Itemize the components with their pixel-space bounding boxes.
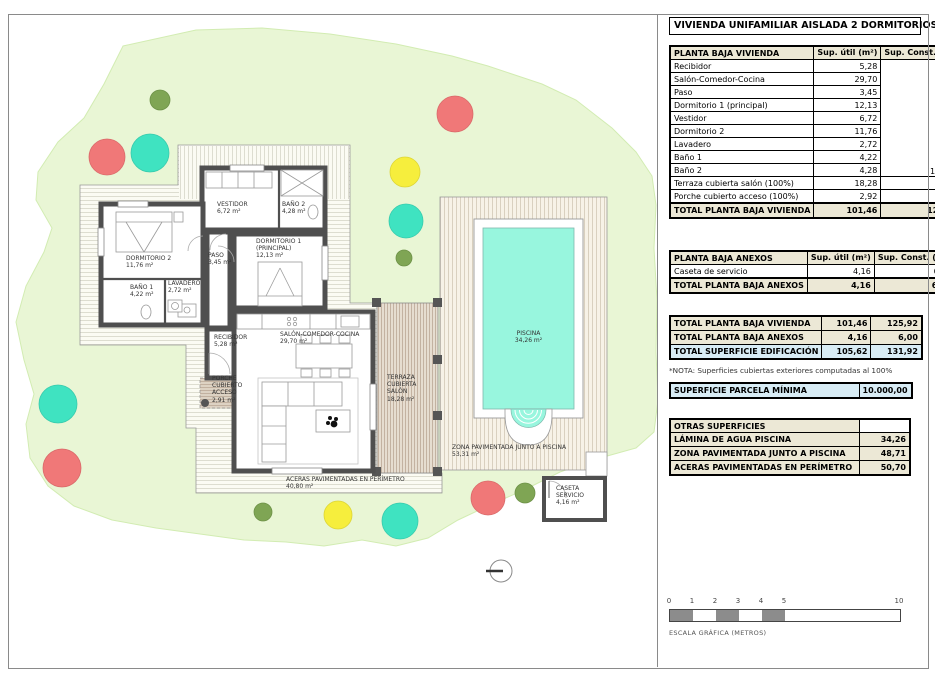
tree-icon <box>390 157 420 187</box>
pool <box>474 219 583 445</box>
cell-util: 4,16 <box>807 278 874 293</box>
table-total-row: TOTAL PLANTA BAJA ANEXOS 4,16 6,00 <box>670 278 935 293</box>
cell-const-merged: 103,44 <box>881 60 935 177</box>
cell-const: 6,00 <box>874 278 935 293</box>
caseta-servicio <box>544 478 605 520</box>
window <box>98 228 104 256</box>
tree-icon <box>471 481 505 515</box>
table-row: TOTAL PLANTA BAJA VIVIENDA 101,46 125,92 <box>670 316 922 331</box>
scale-segment <box>716 610 739 621</box>
cell-label: TOTAL PLANTA BAJA ANEXOS <box>670 278 807 293</box>
cell-util: 4,16 <box>822 331 871 345</box>
terraza-cubierta <box>377 303 438 473</box>
cell-value: 34,26 <box>859 433 910 447</box>
scale-tick: 2 <box>713 597 717 605</box>
table-row: ZONA PAVIMENTADA JUNTO A PISCINA 48,71 <box>670 447 910 461</box>
cell-util: 2,72 <box>814 138 881 151</box>
planta-baja-anexos-table: PLANTA BAJA ANEXOS Sup. útil (m²) Sup. C… <box>669 250 935 294</box>
parcela-minima-table: SUPERFICIE PARCELA MÍNIMA 10.000,00 <box>669 382 913 399</box>
window <box>322 246 328 280</box>
cell-label: Dormitorio 2 <box>670 125 814 138</box>
resumen-table: TOTAL PLANTA BAJA VIVIENDA 101,46 125,92… <box>669 315 923 360</box>
cell-const: 19,24 <box>881 177 935 190</box>
tree-icon <box>39 385 77 423</box>
tree-icon <box>382 503 418 539</box>
table-row: Porche cubierto acceso (100%)2,923,24 <box>670 190 935 204</box>
cell-label: ACERAS PAVIMENTADAS EN PERÍMETRO <box>670 461 859 476</box>
header-sup-const: Sup. Const. (m²) <box>874 251 935 265</box>
cell-util: 11,76 <box>814 125 881 138</box>
table-row: Caseta de servicio 4,16 6,00 <box>670 265 935 279</box>
window <box>370 384 376 430</box>
otras-superficies-table: OTRAS SUPERFICIES LÁMINA DE AGUA PISCINA… <box>669 418 911 476</box>
cell-util: 101,46 <box>822 316 871 331</box>
scale-tick: 0 <box>667 597 671 605</box>
cell-const: 3,24 <box>881 190 935 204</box>
window <box>272 468 322 474</box>
table-header: PLANTA BAJA ANEXOS Sup. útil (m²) Sup. C… <box>670 251 935 265</box>
table-header: OTRAS SUPERFICIES <box>670 419 910 433</box>
table-row: LÁMINA DE AGUA PISCINA 34,26 <box>670 433 910 447</box>
header-sup-const: Sup. Const. (m²) <box>881 46 935 60</box>
scale-tick: 1 <box>690 597 694 605</box>
table-row: TOTAL PLANTA BAJA ANEXOS 4,16 6,00 <box>670 331 922 345</box>
north-symbol <box>486 560 512 582</box>
tree-icon <box>437 96 473 132</box>
window <box>118 201 148 207</box>
table-total-row: TOTAL SUPERFICIE EDIFICACIÓN 105,62 131,… <box>670 345 922 360</box>
cell-label: SUPERFICIE PARCELA MÍNIMA <box>670 383 859 398</box>
scale-tick: 5 <box>782 597 786 605</box>
tree-icon <box>254 503 272 521</box>
window <box>230 165 264 171</box>
scale-segment <box>762 610 785 621</box>
tree-icon <box>150 90 170 110</box>
tree-icon <box>43 449 81 487</box>
cell-label: TOTAL PLANTA BAJA VIVIENDA <box>670 203 814 218</box>
cell-label: Lavadero <box>670 138 814 151</box>
tree-icon <box>389 204 423 238</box>
cell-label: Terraza cubierta salón (100%) <box>670 177 814 190</box>
table-row: Terraza cubierta salón (100%)18,2819,24 <box>670 177 935 190</box>
floor-plan-drawing <box>0 0 657 682</box>
cell-util: 4,22 <box>814 151 881 164</box>
tree-icon <box>131 134 169 172</box>
porche-column <box>201 399 209 407</box>
cell-label: Dormitorio 1 (principal) <box>670 99 814 112</box>
scale-tick: 3 <box>736 597 740 605</box>
table-header: PLANTA BAJA VIVIENDA Sup. útil (m²) Sup.… <box>670 46 935 60</box>
cell-util: 3,45 <box>814 86 881 99</box>
table-total-row: TOTAL PLANTA BAJA VIVIENDA 101,46 125,92 <box>670 203 935 218</box>
cell-value: 10.000,00 <box>859 383 912 398</box>
data-panel: VIVIENDA UNIFAMILIAR AISLADA 2 DORMITORI… <box>657 14 929 667</box>
header-sup-util: Sup. útil (m²) <box>814 46 881 60</box>
cell-label: TOTAL PLANTA BAJA VIVIENDA <box>670 316 822 331</box>
header-sup-util: Sup. útil (m²) <box>807 251 874 265</box>
planta-baja-vivienda-table: PLANTA BAJA VIVIENDA Sup. útil (m²) Sup.… <box>669 45 935 219</box>
cell-util: 4,16 <box>807 265 874 279</box>
table-row: SUPERFICIE PARCELA MÍNIMA 10.000,00 <box>670 383 912 398</box>
cell-label: Baño 2 <box>670 164 814 177</box>
table-row: ACERAS PAVIMENTADAS EN PERÍMETRO 50,70 <box>670 461 910 476</box>
cell-const: 6,00 <box>871 331 922 345</box>
tree-icon <box>515 483 535 503</box>
cell-label: Baño 1 <box>670 151 814 164</box>
cell-util: 105,62 <box>822 345 871 360</box>
tree-icon <box>396 250 412 266</box>
scale-bar <box>669 609 901 622</box>
cell-label: Caseta de servicio <box>670 265 807 279</box>
header-title: PLANTA BAJA ANEXOS <box>670 251 807 265</box>
cell-label: Paso <box>670 86 814 99</box>
cell-const: 6,00 <box>874 265 935 279</box>
scale-tick: 4 <box>759 597 763 605</box>
tree-icon <box>89 139 125 175</box>
header-empty <box>859 419 910 433</box>
cell-util: 6,72 <box>814 112 881 125</box>
cell-label: TOTAL SUPERFICIE EDIFICACIÓN <box>670 345 822 360</box>
cell-const: 131,92 <box>871 345 922 360</box>
table-row: Recibidor 5,28 103,44 <box>670 60 935 73</box>
cell-util: 29,70 <box>814 73 881 86</box>
header-title: OTRAS SUPERFICIES <box>670 419 859 433</box>
sheet-title: VIVIENDA UNIFAMILIAR AISLADA 2 DORMITORI… <box>669 17 921 35</box>
scale-caption: ESCALA GRÁFICA (METROS) <box>669 629 766 637</box>
cell-label: Vestidor <box>670 112 814 125</box>
graphic-scale: 0 1 2 3 4 5 10 ESCALA GRÁFICA (METROS) <box>669 597 915 643</box>
cell-label: Porche cubierto acceso (100%) <box>670 190 814 204</box>
cell-value: 48,71 <box>859 447 910 461</box>
tree-icon <box>324 501 352 529</box>
cell-label: TOTAL PLANTA BAJA ANEXOS <box>670 331 822 345</box>
cell-util: 101,46 <box>814 203 881 218</box>
cell-util: 18,28 <box>814 177 881 190</box>
cell-value: 50,70 <box>859 461 910 476</box>
cell-label: Salón-Comedor-Cocina <box>670 73 814 86</box>
cell-util: 12,13 <box>814 99 881 112</box>
site-plan-sheet: VESTIDOR 6,72 m² BAÑO 2 4,28 m² DORMITOR… <box>0 0 935 682</box>
cell-const: 125,92 <box>881 203 935 218</box>
scale-segment <box>670 610 693 621</box>
nota-text: *NOTA: Superficies cubiertas exteriores … <box>669 366 892 375</box>
cell-label: Recibidor <box>670 60 814 73</box>
cell-util: 5,28 <box>814 60 881 73</box>
scale-tick: 10 <box>895 597 904 605</box>
cell-util: 4,28 <box>814 164 881 177</box>
cell-const: 125,92 <box>871 316 922 331</box>
cell-util: 2,92 <box>814 190 881 204</box>
header-title: PLANTA BAJA VIVIENDA <box>670 46 814 60</box>
cell-label: LÁMINA DE AGUA PISCINA <box>670 433 859 447</box>
cell-label: ZONA PAVIMENTADA JUNTO A PISCINA <box>670 447 859 461</box>
pool-equipment <box>586 452 607 476</box>
